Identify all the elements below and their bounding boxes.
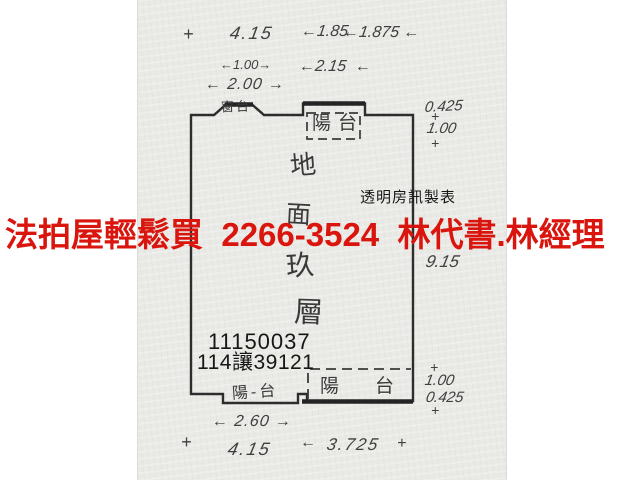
dimension-top-215: ←2.15 ← xyxy=(298,59,372,75)
case-number-line1: 11150037 xyxy=(208,331,311,353)
dimension-right-100-top: 1.00 xyxy=(426,121,458,136)
dimension-right-0425-top: 0.425 xyxy=(424,98,464,115)
dimension-top-100: ←1.00→ xyxy=(220,58,271,71)
case-number-line2: 114讓39121 xyxy=(197,352,314,373)
window-sill-label: 窗台 xyxy=(221,99,251,113)
scanned-floorplan-page: 窗台 陽台 地 面 玖 層 陽-台 陽台 + 4.15 ←1.85 ←1.875… xyxy=(0,0,640,480)
floor-text-char-3: 玖 xyxy=(285,251,315,281)
dimension-tick-right-4: + xyxy=(431,403,439,417)
floor-text-char-1: 地 xyxy=(289,151,317,179)
dimension-right-100-bottom: 1.00 xyxy=(424,373,456,388)
dimension-top-415: 4.15 xyxy=(228,24,274,42)
dimension-right-915: 9.15 xyxy=(424,253,461,270)
ad-banner-text: 法拍屋輕鬆買 2266-3524 林代書.林經理 xyxy=(5,218,605,251)
dimension-tick-top-left: + xyxy=(183,25,194,43)
dimension-bottom-3725: 3.725 xyxy=(325,436,381,453)
balcony-top-label: 陽台 xyxy=(312,114,364,133)
dimension-top-200: ← 2.00 → xyxy=(204,77,286,93)
dimension-bottom-415: 4.15 xyxy=(226,440,273,458)
balcony-bottom-label: 陽台 xyxy=(320,377,430,396)
dimension-tick-right-2: + xyxy=(431,136,439,150)
dimension-tick-bottom-right: + xyxy=(397,436,406,452)
dimension-top-1875: ←1.875 ← xyxy=(342,25,421,41)
publisher-stamp: 透明房訊製表 xyxy=(360,190,456,205)
balcony-bottom-left-label: 陽-台 xyxy=(231,383,278,402)
dimension-tick-bottom-left: + xyxy=(181,433,192,451)
dimension-arrow-bottom: ← xyxy=(300,435,316,451)
floor-text-char-4: 層 xyxy=(294,299,324,329)
dimension-bottom-260: ← 2.60 → xyxy=(211,414,293,430)
